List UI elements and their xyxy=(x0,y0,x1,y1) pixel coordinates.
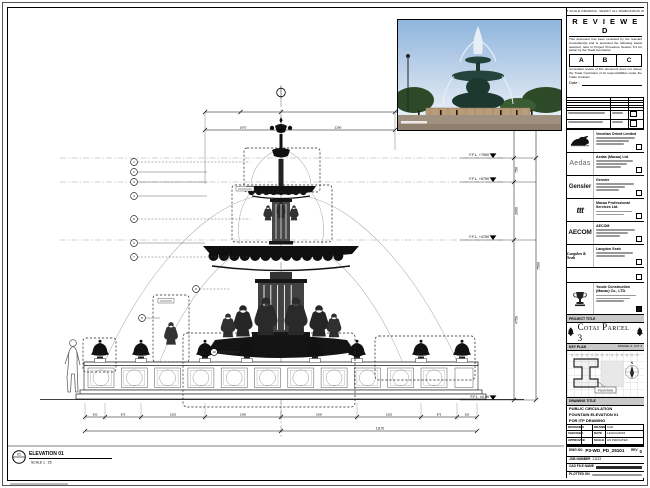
cad-file-value xyxy=(596,466,642,470)
consultant-checkbox xyxy=(636,259,643,266)
dim-text: 500 xyxy=(93,413,98,417)
fountain-location-label: FOUNTAIN xyxy=(598,389,613,393)
person xyxy=(531,110,533,115)
langdon-seah-logo: Langdon & Seah xyxy=(567,245,594,267)
statue xyxy=(233,305,252,336)
key-plan: N FOUNTAIN xyxy=(567,351,644,398)
drawing-title: PUBLIC CIRCULATION FOUNTAIN ELEVATION 01… xyxy=(567,406,644,425)
base-ring xyxy=(207,336,355,358)
street-tree xyxy=(581,354,583,356)
building-footprint xyxy=(574,359,598,387)
bollard-finial xyxy=(99,340,102,343)
dim-text: 500 xyxy=(465,413,470,417)
revision: 0 xyxy=(640,449,642,454)
dim-text: F.F.L. +6750 xyxy=(469,177,489,181)
bollard-post xyxy=(242,359,253,363)
dim-text: F.F.L. ±0.00 xyxy=(470,395,489,399)
gadroon xyxy=(219,251,229,261)
date-label: Date : xyxy=(569,81,580,86)
person xyxy=(456,110,458,115)
gadroon xyxy=(333,251,343,261)
bollard-cap xyxy=(453,343,471,356)
dim-text: 7500 xyxy=(537,262,541,270)
consultant-checkbox xyxy=(636,274,643,281)
dim-text: 875 xyxy=(121,413,126,417)
statue xyxy=(309,305,328,336)
view-title-block: 01 ELEVATION 01 SCALE 1 : 25 xyxy=(8,446,564,465)
dim-text: F.F.L. +4750 xyxy=(469,235,489,239)
status-option-c: C xyxy=(617,55,641,66)
consultant-checkbox xyxy=(636,167,643,174)
svg-text:N: N xyxy=(631,361,634,365)
street-tree xyxy=(601,354,603,356)
dim-text: 2000 xyxy=(515,207,519,215)
bollard-post xyxy=(416,359,427,363)
gadroon xyxy=(250,251,260,261)
street-tree xyxy=(626,354,628,356)
photo-watermark xyxy=(401,121,427,124)
dim-text: 1625 xyxy=(386,413,392,417)
consultant-checkbox xyxy=(636,190,643,197)
project-name: Cotai Parcel 3 xyxy=(578,322,634,344)
dim-text: 1625 xyxy=(170,413,176,417)
parcel-label: PARCEL 3, LOT 3 xyxy=(618,345,642,349)
consultant-name: AECOM xyxy=(596,224,642,228)
status-options: A B C xyxy=(569,54,642,67)
contractor-checkbox xyxy=(636,306,643,313)
spare-consultant-box xyxy=(567,268,644,283)
fountain-photo xyxy=(397,19,562,131)
reviewed-stamp: R E V I E W E D This document has been r… xyxy=(567,16,644,98)
level-marker xyxy=(490,235,497,240)
basin-wall-stone xyxy=(426,108,530,116)
consultant-box-venetian: Venetian Orient Limited xyxy=(567,130,644,153)
review-log-table xyxy=(567,98,644,130)
bollard-cap xyxy=(132,343,150,356)
view-scale: SCALE 1 : 25 xyxy=(31,461,52,465)
bollard-post xyxy=(95,359,106,363)
consultant-box-aedas: Aedas Aedas (Macau) Ltd. xyxy=(567,153,644,176)
job-number: 21123 xyxy=(592,458,601,462)
bollard-finial xyxy=(204,340,207,343)
bollard-post xyxy=(310,359,321,363)
dim-text: 4750 xyxy=(515,316,519,324)
venetian-lion-logo xyxy=(567,130,594,152)
gadroon xyxy=(209,251,219,261)
project-title: Cotai Parcel 3 xyxy=(567,323,644,344)
date-line xyxy=(582,81,642,86)
status-option-a: A xyxy=(570,55,594,66)
street-tree xyxy=(636,354,638,356)
bollard-finial xyxy=(314,340,317,343)
bollard-post xyxy=(200,359,211,363)
drawing-info-grid: DESIGNED - DRAWN CAD CHECKED - DATE 12/A… xyxy=(567,425,644,446)
street-tree xyxy=(596,354,598,356)
consultant-name: Gensler xyxy=(596,178,642,182)
person xyxy=(418,110,420,115)
dim-text: 10 xyxy=(212,350,216,354)
upper-statue xyxy=(289,205,298,220)
consultant-name: Macau Professional Services Ltd. xyxy=(596,201,642,210)
dim-text: 1670 xyxy=(240,125,247,129)
fleur-ornament xyxy=(636,327,644,338)
street-tree xyxy=(591,354,593,356)
gadroon xyxy=(292,251,302,261)
street-tree xyxy=(571,354,573,356)
gadroon xyxy=(240,251,250,261)
dim-text: 875 xyxy=(437,413,442,417)
title-block: DO NOT SCALE DRAWING. VERIFY ALL DIMENSI… xyxy=(566,8,644,478)
ttt-logo: ttt xyxy=(567,199,594,221)
contractor-box: Youde Construction (Macau) Co., LTD. xyxy=(567,283,644,315)
aedas-logo: Aedas xyxy=(567,153,594,175)
bollard-post xyxy=(352,359,363,363)
gadroon xyxy=(313,251,323,261)
consultant-name: Aedas (Macau) Ltd. xyxy=(596,155,642,159)
north-compass-icon: N xyxy=(626,361,639,379)
drawing-title-band: DRAWING TITLE xyxy=(567,398,644,405)
person xyxy=(500,110,502,115)
disclaimer-text: DO NOT SCALE DRAWING. VERIFY ALL DIMENSI… xyxy=(567,10,644,14)
aecom-logo: AECOM xyxy=(567,222,594,244)
job-number-row: JOB NUMBER 21123 xyxy=(567,456,644,463)
consultant-box-aecom: AECOM AECOM xyxy=(567,222,644,245)
street-tree xyxy=(621,354,623,356)
dim-text: 750 xyxy=(515,167,519,173)
scale-figure xyxy=(65,340,80,392)
gadroon xyxy=(302,251,312,261)
consultant-box-mps: ttt Macau Professional Services Ltd. xyxy=(567,199,644,222)
consultant-checkbox xyxy=(636,213,643,220)
contractor-trophy-logo xyxy=(567,283,594,314)
consultant-checkbox xyxy=(636,144,643,151)
drawing-sheet: F.F.L. +7500F.F.L. +6750F.F.L. +4750F.F.… xyxy=(0,0,650,488)
stamp-paragraph: This document has been reviewed by the r… xyxy=(569,38,642,53)
bollard-cap xyxy=(91,343,109,356)
dwg-number: P3-WD_PD_25101 xyxy=(585,448,629,454)
street-tree xyxy=(576,354,578,356)
statue xyxy=(221,314,236,338)
band-label: PROJECT TITLE xyxy=(569,317,595,321)
consultant-name: Langdon Seah xyxy=(596,247,642,251)
dim-text: 11170 xyxy=(376,427,385,431)
gadroon xyxy=(261,251,271,261)
consultant-box-gensler: Gensler Gensler xyxy=(567,176,644,199)
finial xyxy=(279,117,282,123)
callout-statue xyxy=(164,322,178,345)
dwg-number-row: DWG NO. P3-WD_PD_25101 REV 0 xyxy=(567,446,644,456)
level-marker xyxy=(490,177,497,182)
street-tree xyxy=(586,354,588,356)
bollard-cap xyxy=(412,343,430,356)
person xyxy=(516,110,518,115)
bollard-finial xyxy=(140,340,143,343)
dim-text: 1900 xyxy=(240,413,246,417)
stamp-date-row: Date : xyxy=(569,81,642,86)
bollard-cap xyxy=(348,343,366,356)
key-plan-band: KEY PLAN PARCEL 3, LOT 3 xyxy=(567,344,644,351)
band-label: DRAWING TITLE xyxy=(569,399,596,403)
gadroon xyxy=(271,251,281,261)
status-option-b: B xyxy=(594,55,618,66)
street-tree xyxy=(606,354,608,356)
view-number: 01 xyxy=(17,453,21,457)
gadroon xyxy=(281,251,291,261)
basin-wall xyxy=(84,366,478,391)
bollard-finial xyxy=(356,340,359,343)
bollard-finial xyxy=(420,340,423,343)
bollard-post xyxy=(136,359,147,363)
stamp-paragraph: Consultant review of this document does … xyxy=(569,68,642,79)
sheet-disclaimer: DO NOT SCALE DRAWING. VERIFY ALL DIMENSI… xyxy=(567,8,644,16)
gadroon xyxy=(229,251,239,261)
reviewed-title: R E V I E W E D xyxy=(569,17,642,37)
fleur-ornament xyxy=(567,327,575,338)
upper-statue xyxy=(263,205,272,220)
plotted-row: PLOTTED ON xyxy=(567,471,644,478)
band-label: KEY PLAN xyxy=(569,345,586,349)
bollard-finial xyxy=(461,340,464,343)
street-tree xyxy=(611,354,613,356)
bollard-finial xyxy=(246,340,249,343)
consultant-name: Venetian Orient Limited xyxy=(596,132,642,136)
plot-value xyxy=(592,474,642,476)
consultant-box-langdon-seah: Langdon & Seah Langdon Seah xyxy=(567,245,644,268)
bollard-post xyxy=(457,359,468,363)
contractor-name: Youde Construction (Macau) Co., LTD. xyxy=(596,285,642,294)
dim-text: 1900 xyxy=(316,413,322,417)
gensler-logo: Gensler xyxy=(567,176,594,198)
dim-text: F.F.L. +7500 xyxy=(469,153,489,157)
consultant-checkbox xyxy=(636,236,643,243)
cad-file-row: CAD FILE NAME xyxy=(567,463,644,470)
dim-text: 2290 xyxy=(335,125,342,129)
person xyxy=(440,110,442,115)
street-tree xyxy=(631,354,633,356)
level-marker xyxy=(490,153,497,158)
statue xyxy=(327,314,342,338)
sheet-footnote-fine-print xyxy=(10,483,68,485)
street-tree xyxy=(616,354,618,356)
view-title: ELEVATION 01 xyxy=(29,451,64,457)
gadroon xyxy=(323,251,333,261)
